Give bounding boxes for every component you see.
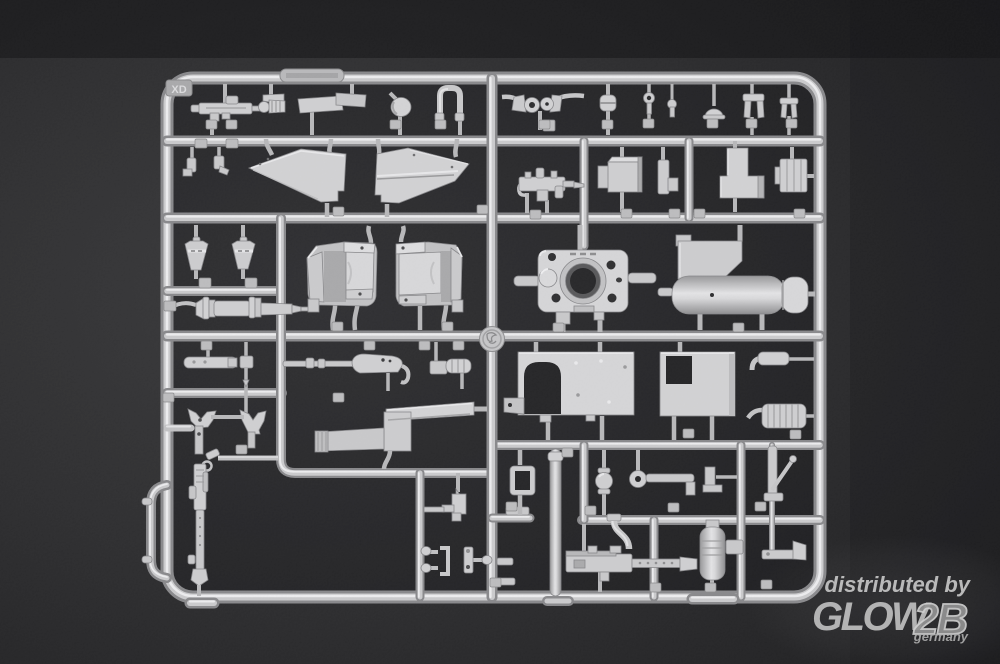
svg-text:distributed by: distributed by	[825, 572, 972, 597]
svg-text:germany: germany	[913, 629, 969, 644]
